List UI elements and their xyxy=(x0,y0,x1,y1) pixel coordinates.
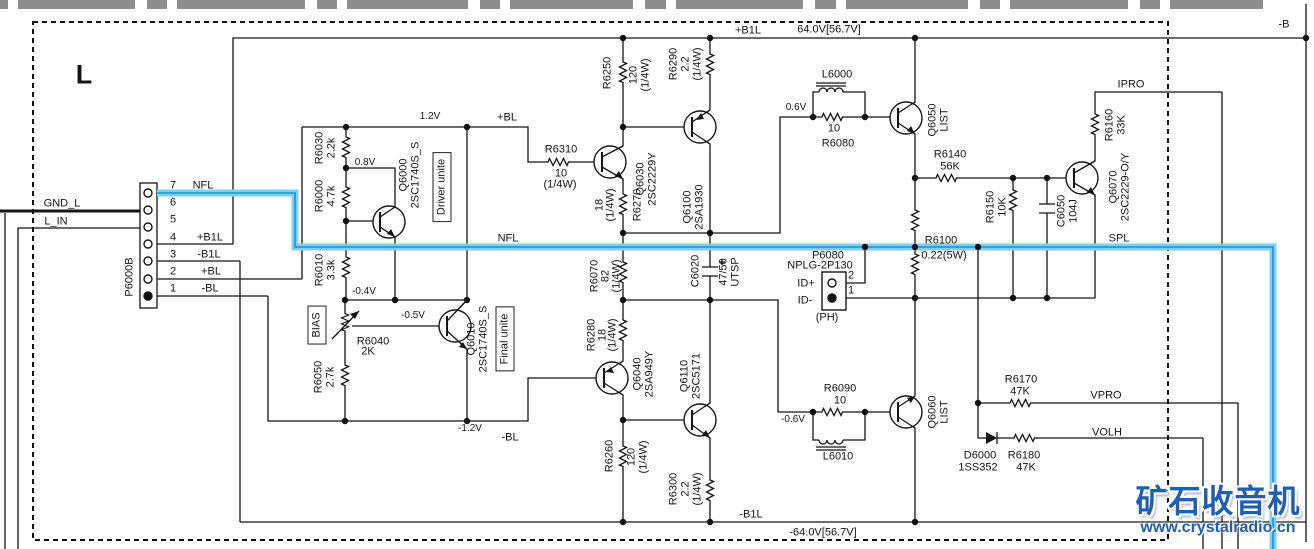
pin2-number: 2 xyxy=(170,267,176,278)
r6100-symbol-lower xyxy=(912,252,919,278)
r6180-value: 47K xyxy=(1016,463,1036,474)
top-gray-dashes xyxy=(0,0,1263,9)
c6020-ref: C6020 xyxy=(691,255,702,287)
bl-neg-net-label: -BL xyxy=(501,433,518,444)
rail-wires xyxy=(233,4,1306,542)
d6000-diode xyxy=(986,432,997,444)
r6150-value: 10K xyxy=(998,197,1009,217)
r6000-value: 4.7k xyxy=(327,186,338,207)
bias-pot-arrow xyxy=(350,311,359,319)
r6300-ref: R6300 xyxy=(669,473,680,505)
r6140-ref: R6140 xyxy=(934,150,966,161)
watermark-url: www.crystalradio.cn xyxy=(1122,519,1314,537)
pin4-number: 4 xyxy=(170,233,176,244)
q6000-part: 2SC1740S_S xyxy=(411,142,422,209)
r6140-value: 56K xyxy=(940,162,960,173)
r6290-ref: R6290 xyxy=(669,48,680,80)
r6140-symbol xyxy=(934,175,960,182)
q6110-ref: Q6110 xyxy=(680,360,691,392)
l6010-ref: L6010 xyxy=(823,452,854,463)
r6270-watt: (1/4W) xyxy=(606,189,617,222)
c6050-value: 104J xyxy=(1069,199,1080,223)
pin3-name: -B1L xyxy=(197,250,220,261)
p6080-connector xyxy=(822,272,846,310)
pin7-number: 7 xyxy=(170,181,176,192)
r6080-ref: R6080 xyxy=(822,139,854,150)
q6070-part: 2SC2229-O/Y xyxy=(1121,153,1132,221)
q6060-body xyxy=(890,396,922,428)
r6000-ref: R6000 xyxy=(315,180,326,212)
r6310-symbol xyxy=(546,159,572,166)
bias-block-label: BIAS xyxy=(308,305,327,344)
r6090-ref: R6090 xyxy=(824,384,856,395)
pin3-number: 3 xyxy=(170,250,176,261)
b-neg-label: -B xyxy=(1279,20,1290,31)
pin1-name: -BL xyxy=(201,284,218,295)
r6180-ref: R6180 xyxy=(1008,451,1040,462)
q6030-ref: Q6030 xyxy=(636,162,647,195)
v1p2-label: 1.2V xyxy=(420,112,441,122)
r6250-value: 120 xyxy=(629,66,640,84)
d6000-ref: D6000 xyxy=(964,451,996,462)
b1l-pos-rail-label: +B1L xyxy=(735,26,761,37)
q6000-ref: Q6000 xyxy=(399,158,410,191)
r6310-ref: R6310 xyxy=(545,145,577,156)
p6080-idneg-label: ID- xyxy=(798,296,813,307)
r6080-value: 10 xyxy=(828,124,840,135)
vm0p6-label: -0.6V xyxy=(781,415,805,425)
q6040-ref: Q6040 xyxy=(633,357,644,390)
r6030-symbol xyxy=(343,135,350,161)
r6170-value: 47K xyxy=(1010,387,1030,398)
r6260-watt: (1/4W) xyxy=(639,441,650,474)
r6050-symbol xyxy=(342,363,349,389)
p6080-pin2-number: 2 xyxy=(848,271,854,282)
q6010-ref: Q6010 xyxy=(467,322,478,355)
schematic-page: L GND_L L_IN P6000B 7 6 5 4 3 2 1 NFL +B… xyxy=(0,0,1314,549)
neg-rail-voltage: -64.0V[56.7V] xyxy=(789,528,856,539)
r6250-watt: (1/4W) xyxy=(641,59,652,92)
q6050-part: LIST xyxy=(940,108,951,131)
r6100-ref: R6100 xyxy=(925,236,957,247)
c6050-ref: C6050 xyxy=(1057,195,1068,227)
r6000-symbol xyxy=(343,185,350,211)
r6290-watt: (1/4W) xyxy=(693,48,704,81)
pin2-name: +BL xyxy=(201,267,221,278)
bl-pos-net-label: +BL xyxy=(497,113,517,124)
q6040-body xyxy=(596,362,628,394)
q6100-ref: Q6100 xyxy=(683,190,694,223)
r6280-watt: (1/4W) xyxy=(608,319,619,352)
pin4-name: +B1L xyxy=(197,233,223,244)
pin6-number: 6 xyxy=(170,198,176,209)
r6300-symbol xyxy=(707,478,714,504)
c6020-type: UTSP xyxy=(731,257,742,286)
l6000-ref: L6000 xyxy=(822,70,853,81)
q6050-body xyxy=(890,102,922,134)
q6100-part: 2SA1930 xyxy=(695,184,706,229)
r6250-symbol xyxy=(620,60,627,86)
r6260-value: 120 xyxy=(627,448,638,466)
c6020-value: 47/50 xyxy=(719,258,730,286)
volh-net-label: VOLH xyxy=(1092,428,1122,439)
q6110-part: 2SC5171 xyxy=(692,353,703,399)
final-block-label: Final unite xyxy=(496,307,515,372)
spl-net-label: SPL xyxy=(1109,234,1130,245)
r6300-watt: (1/4W) xyxy=(693,473,704,506)
r6260-ref: R6260 xyxy=(605,440,616,472)
vm1p2-label: -1.2V xyxy=(458,424,482,434)
pin7-name: NFL xyxy=(193,181,214,192)
p6080-idpos-label: ID+ xyxy=(797,279,814,290)
pos-rail-voltage: 64.0V[56.7V] xyxy=(797,25,861,36)
r6010-symbol xyxy=(343,255,350,281)
watermark: 矿石收音机 www.crystalradio.cn xyxy=(1122,484,1314,537)
r6030-value: 2.2k xyxy=(327,138,338,159)
gnd-l-net-label: GND_L xyxy=(44,199,81,210)
r6170-ref: R6170 xyxy=(1005,375,1037,386)
v0p8-label: 0.8V xyxy=(355,158,376,168)
r6150-symbol xyxy=(1010,188,1017,214)
l-in-net-label: L_IN xyxy=(44,217,67,228)
vpro-net-label: VPRO xyxy=(1090,391,1121,402)
r6280-symbol xyxy=(620,318,627,344)
p6080-pin1-number: 1 xyxy=(848,286,854,297)
q6040-part: 2SA949Y xyxy=(645,351,656,397)
r6050-value: 2.7k xyxy=(326,367,337,388)
r6150-ref: R6150 xyxy=(986,191,997,223)
r6170-symbol xyxy=(1008,400,1034,407)
p6080-ph-label: (PH) xyxy=(816,313,839,324)
r6160-ref: R6160 xyxy=(1105,109,1116,141)
r6050-ref: R6050 xyxy=(314,361,325,393)
channel-label: L xyxy=(76,62,93,89)
vm0p4-label: -0.4V xyxy=(352,287,376,297)
v0p6-label: 0.6V xyxy=(786,103,807,113)
r6290-value: 2.2 xyxy=(681,56,692,71)
r6010-value: 3.3k xyxy=(327,260,338,281)
r6250-ref: R6250 xyxy=(603,57,614,89)
ipro-net-label: IPRO xyxy=(1118,80,1145,91)
r6160-value: 33K xyxy=(1117,115,1128,135)
nfl-mid-net-label: NFL xyxy=(498,234,519,245)
pin5-number: 5 xyxy=(170,215,176,226)
r6090-value: 10 xyxy=(834,396,846,407)
r6270-symbol xyxy=(620,192,627,218)
q6030-part: 2SC2229Y xyxy=(648,152,659,205)
driver-block-label: Driver unite xyxy=(433,152,452,222)
r6310-watt: (1/4W) xyxy=(544,180,577,191)
r6010-ref: R6010 xyxy=(315,254,326,286)
vm0p5-label: -0.5V xyxy=(401,311,425,321)
r6100-value: 0.22(5W) xyxy=(921,251,966,262)
r6090-symbol xyxy=(820,409,846,416)
pin1-number: 1 xyxy=(170,284,176,295)
q6070-ref: Q6070 xyxy=(1109,170,1120,203)
q6060-part: LIST xyxy=(940,400,951,423)
r6300-value: 2.2 xyxy=(681,481,692,496)
p6000b-ref-label: P6000B xyxy=(125,257,136,296)
d6000-part: 1SS352 xyxy=(958,463,997,474)
r6160-symbol xyxy=(1092,112,1099,138)
r6070-watt: (1/4W) xyxy=(612,260,623,293)
q6060-ref: Q6060 xyxy=(928,395,939,428)
r6080-symbol xyxy=(820,114,846,121)
q6030-body xyxy=(594,146,626,178)
r6290-symbol xyxy=(707,52,714,78)
q6050-ref: Q6050 xyxy=(928,103,939,136)
r6100-symbol-upper xyxy=(912,208,919,234)
watermark-title: 矿石收音机 xyxy=(1122,484,1314,519)
b1l-neg-rail-label: -B1L xyxy=(739,510,762,521)
q6070-body xyxy=(1066,162,1098,194)
q6010-part: 2SC1740S_S xyxy=(479,306,490,373)
r6180-symbol xyxy=(1012,435,1038,442)
r6030-ref: R6030 xyxy=(315,132,326,164)
r6040-value: 2K xyxy=(361,347,374,358)
p6080-part: NPLG-2P130 xyxy=(787,261,852,272)
